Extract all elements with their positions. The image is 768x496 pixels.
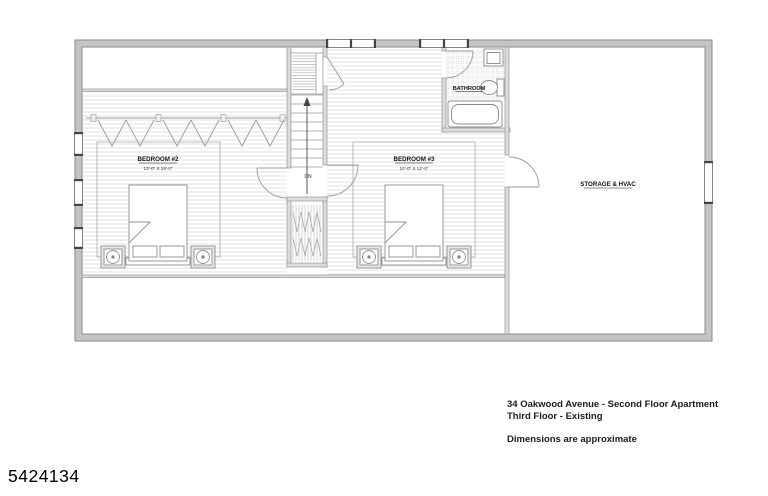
stair-closet-divider: [287, 197, 327, 201]
title-address: 34 Oakwood Avenue - Second Floor Apartme…: [507, 399, 747, 411]
bed2-pillow-right: [160, 246, 184, 257]
title-floor: Third Floor - Existing: [507, 411, 747, 423]
bed3-lamp-left-dot: [368, 256, 371, 259]
bathroom-label: BATHROOM: [453, 86, 486, 92]
left-window-3: [75, 228, 83, 248]
bedroom2-label: BEDROOM #2: [138, 156, 179, 163]
stair-top-door-swing: [329, 84, 344, 90]
photo-id: 5424134: [8, 466, 80, 487]
stair-right-wall-lower: [323, 197, 327, 267]
stair-left-wall-upper: [287, 47, 291, 168]
storage-door-swing: [509, 157, 539, 187]
knee-wall-north: [82, 89, 287, 92]
title-block: 34 Oakwood Avenue - Second Floor Apartme…: [507, 399, 747, 446]
stair-left-wall-lower: [287, 198, 291, 267]
bedroom2-dimensions: 13'-0" X 18'-0": [143, 166, 172, 171]
stair-dn-label: DN: [304, 174, 312, 180]
knee-wall-south: [82, 275, 505, 278]
bathroom-bottom-wall: [442, 128, 510, 132]
floor-hatch-middle-top: [327, 50, 442, 130]
top-window-1: [327, 40, 351, 48]
closet-hatch: [293, 205, 320, 261]
bed2-pillow-left: [133, 246, 157, 257]
bedroom2-furniture: [101, 185, 215, 268]
toilet-tank: [497, 79, 504, 96]
top-window-2: [351, 40, 375, 48]
bed3-pillow-right: [416, 246, 440, 257]
bathroom-left-wall-bottom: [442, 78, 446, 132]
bedroom3-dimensions: 10'-0" X 12'-0": [399, 166, 428, 171]
storage-label: STORAGE & HVAC: [580, 181, 636, 188]
top-window-3: [420, 40, 444, 48]
right-window-1: [705, 162, 713, 203]
left-window-1: [75, 133, 83, 155]
bed3-lamp-right-dot: [458, 256, 461, 259]
closet-bottom-wall: [287, 263, 327, 267]
storage-west-wall-lower: [505, 187, 509, 334]
floor-plan-page: BEDROOM #2 13'-0" X 18'-0" BEDROOM #3 10…: [0, 0, 768, 496]
left-window-2: [75, 180, 83, 205]
bedroom3-label: BEDROOM #3: [394, 156, 435, 163]
bathtub-basin: [452, 105, 499, 125]
stair-right-wall-top: [323, 47, 327, 57]
bed2-lamp-left-dot: [112, 256, 115, 259]
bathroom-sink: [487, 53, 500, 64]
top-window-4: [444, 40, 468, 48]
stair-head-hatch-box: [291, 53, 323, 94]
stair-direction-arrow: [304, 97, 311, 106]
bed2-lamp-right-dot: [202, 256, 205, 259]
stair-right-wall-mid: [323, 86, 327, 165]
storage-west-wall-upper: [505, 47, 509, 155]
title-note: Dimensions are approximate: [507, 434, 747, 446]
bed3-pillow-left: [389, 246, 413, 257]
